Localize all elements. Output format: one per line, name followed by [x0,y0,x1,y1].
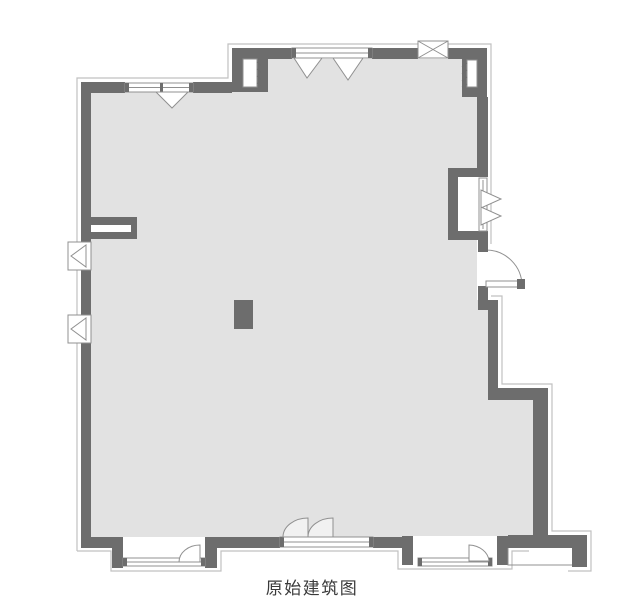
wall-top-left-a [81,82,125,93]
strip-cap-l [280,537,284,547]
wall-top-upper-a [268,48,292,59]
bay1-cap-l [123,558,127,566]
partition-stub-core [91,225,131,232]
wall-right-lower [533,400,548,537]
shaft-top-right-inset [467,60,477,87]
wall-right-mid [488,300,498,400]
window-top-cap-r [368,48,372,58]
shaft-top-left-inset [243,59,257,87]
wall-left-lower [81,343,91,547]
door-leaf-cap [517,279,525,289]
niche-wall-left [448,168,458,240]
wall-step-bar [488,388,548,400]
floor-plan: 原始建筑图 [0,0,640,610]
wall-bottom-mid-left [217,537,280,548]
wall-bottom-mid-right [373,537,402,548]
bay2-stub-right [497,536,508,565]
niche-wall-bottom [448,231,488,240]
strip-cap-r [369,537,373,547]
bay2-stub-left [402,536,413,565]
door-leaf [486,281,519,287]
wall-left-upper [81,82,91,242]
window-top-left-post [160,83,163,92]
wall-right-upper [477,97,488,168]
window-top-left-cap-r [189,83,193,92]
window-top-cap-l [292,48,296,58]
bay2-cap-l [418,558,422,566]
floor-plan-canvas [0,0,640,610]
wall-top-left-b [193,82,232,93]
floor [91,59,533,537]
porch-stub [572,535,587,567]
bay1-cap-r [201,558,205,566]
door-hinge [479,246,488,252]
wall-left-mid [81,270,91,315]
column [234,300,253,329]
window-top-left-cap-l [125,83,129,92]
wall-top-upper-b [372,48,418,59]
wall-bottom-left [81,537,115,548]
bay1-stub-right [205,537,217,568]
plan-caption: 原始建筑图 [232,574,392,599]
